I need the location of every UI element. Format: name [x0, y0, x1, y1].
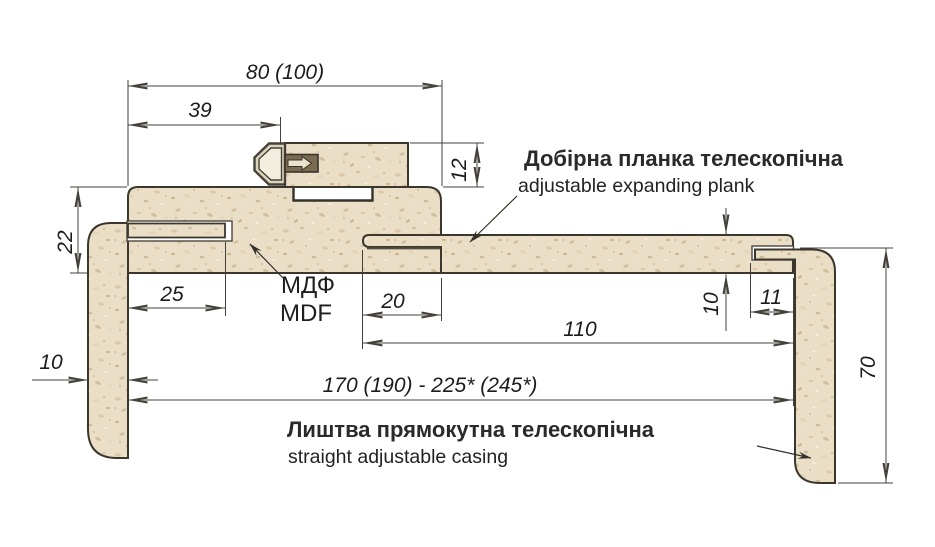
dim-label-tenon-offset: 39 — [188, 99, 212, 122]
left-casing-tongue — [128, 224, 225, 238]
dim-label-plank-tongue: 20 — [380, 290, 405, 313]
plank-subtitle: adjustable expanding plank — [518, 175, 755, 197]
dim-label-frame-width: 80 (100) — [246, 61, 324, 84]
dim-label-plank-thickness: 10 — [700, 292, 723, 316]
frame-top-notch — [293, 186, 373, 202]
technical-drawing-page: 80 (100) 39 12 22 25 20 110 10 11 10 70 … — [0, 0, 935, 547]
casing-subtitle: straight adjustable casing — [288, 446, 508, 468]
material-label-uk: МДФ — [281, 272, 335, 299]
dim-label-frame-thickness: 22 — [54, 230, 77, 255]
dim-label-casing-tongue: 25 — [159, 283, 184, 306]
plank-title: Добірна планка телескопічна — [524, 146, 844, 171]
door-frame-diagram: 80 (100) 39 12 22 25 20 110 10 11 10 70 … — [0, 0, 935, 547]
material-label-en: MDF — [280, 300, 332, 327]
dim-label-casing-width: 70 — [857, 356, 880, 380]
dim-label-right-tongue: 11 — [760, 286, 782, 309]
dim-label-overall-range: 170 (190) - 225* (245*) — [323, 374, 538, 397]
dim-label-jamb-stop: 12 — [448, 158, 471, 182]
dim-label-casing-thickness: 10 — [39, 351, 63, 374]
casing-title: Лиштва прямокутна телескопічна — [287, 417, 655, 442]
dim-label-plank-width: 110 — [563, 318, 597, 341]
